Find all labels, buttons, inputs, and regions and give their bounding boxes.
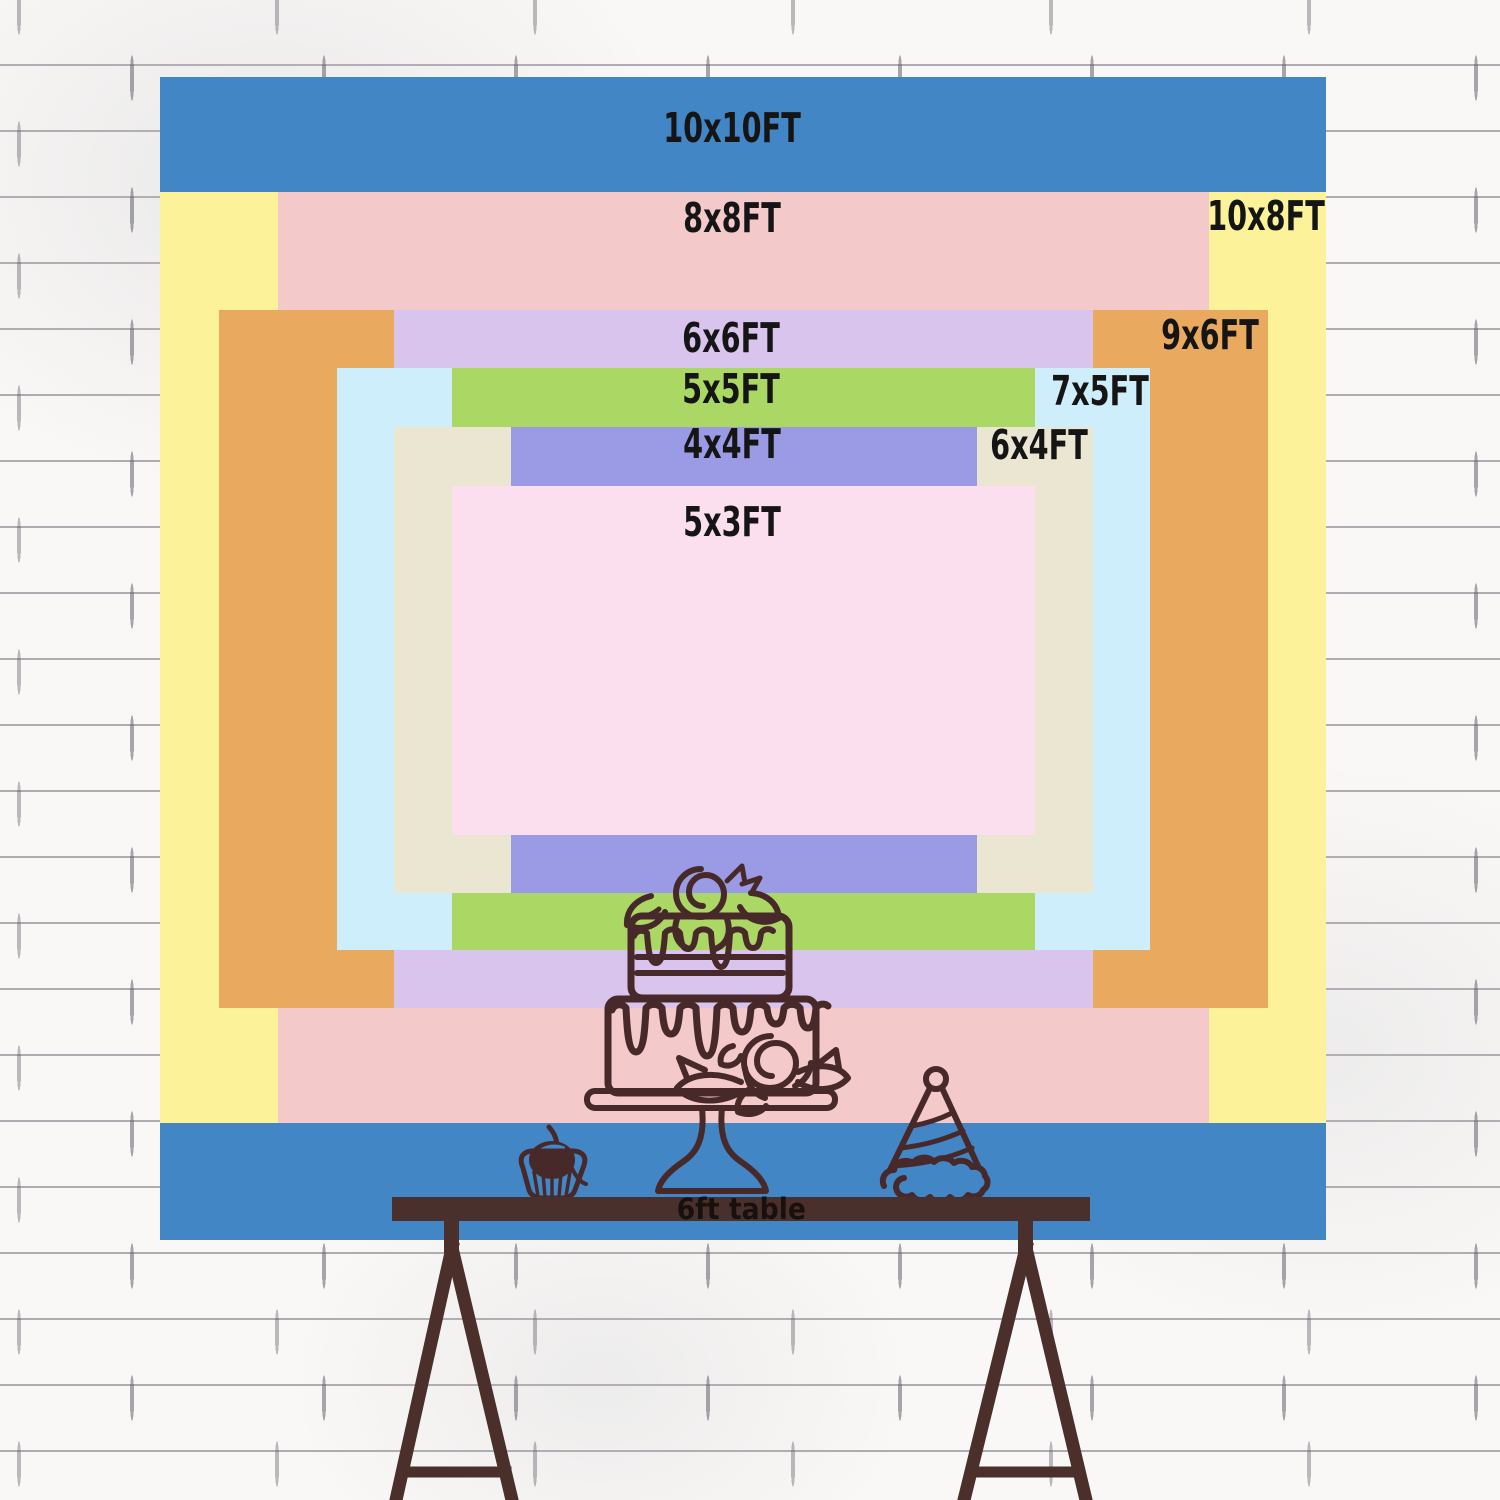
size-label-5x5ft: 5x5FT — [682, 365, 780, 413]
table-top: 6ft table — [392, 1197, 1090, 1221]
size-label-5x3ft: 5x3FT — [683, 498, 781, 546]
table-trestle-right — [964, 1219, 1086, 1500]
size-label-8x8ft: 8x8FT — [683, 194, 781, 242]
size-label-6x6ft: 6x6FT — [682, 314, 780, 362]
table-label: 6ft table — [676, 1192, 805, 1226]
backdrop-size-chart: 10x10FT10x8FT8x8FT9x6FT6x6FT7x5FT5x5FT6x… — [0, 0, 1500, 1500]
size-label-7x5ft: 7x5FT — [1051, 367, 1149, 415]
size-label-10x10ft: 10x10FT — [663, 104, 801, 152]
size-label-9x6ft: 9x6FT — [1161, 311, 1259, 359]
table-trestle-left — [396, 1219, 512, 1500]
size-label-6x4ft: 6x4FT — [990, 421, 1088, 469]
size-label-10x8ft: 10x8FT — [1207, 192, 1325, 240]
size-label-4x4ft: 4x4FT — [683, 420, 781, 468]
